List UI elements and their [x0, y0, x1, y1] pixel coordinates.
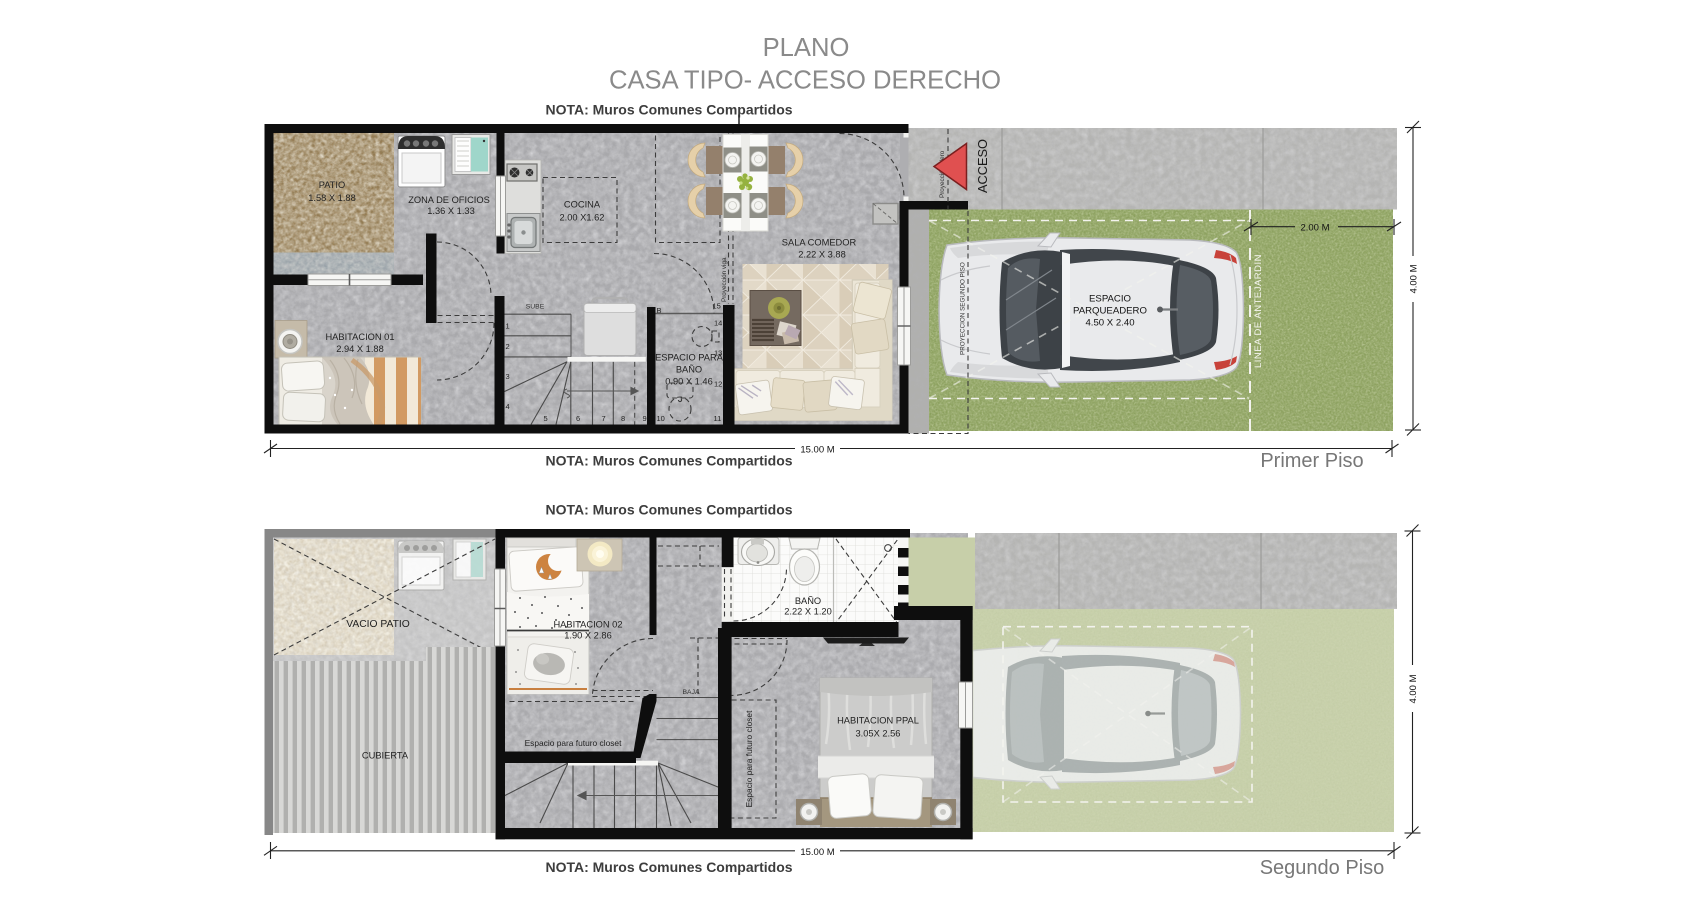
svg-text:CUBIERTA: CUBIERTA	[362, 751, 409, 761]
svg-text:0.90 X 1.46: 0.90 X 1.46	[665, 377, 713, 387]
svg-text:8: 8	[621, 414, 625, 423]
svg-text:4: 4	[506, 402, 510, 411]
svg-text:BAÑO: BAÑO	[795, 596, 821, 606]
svg-text:BAJA: BAJA	[683, 689, 700, 696]
svg-text:LINEA DE ANTEJARDIN: LINEA DE ANTEJARDIN	[1253, 254, 1264, 368]
svg-text:3: 3	[506, 372, 510, 381]
svg-text:HABITACION 01: HABITACION 01	[325, 332, 394, 342]
svg-text:2.22 X 1.20: 2.22 X 1.20	[784, 607, 832, 617]
svg-text:2: 2	[506, 342, 510, 351]
svg-text:COCINA: COCINA	[564, 200, 601, 210]
svg-text:PROYECCION SEGUNDO PISO: PROYECCION SEGUNDO PISO	[960, 262, 967, 355]
svg-text:Segundo Piso: Segundo Piso	[1260, 857, 1385, 879]
svg-text:HABITACION PPAL: HABITACION PPAL	[837, 716, 919, 726]
svg-text:SUBE: SUBE	[526, 304, 545, 311]
svg-text:10: 10	[657, 414, 665, 423]
svg-text:11: 11	[714, 414, 722, 423]
svg-text:2.00 M: 2.00 M	[1300, 223, 1329, 234]
svg-text:BAÑO: BAÑO	[676, 365, 702, 375]
svg-text:1.90 X 2.86: 1.90 X 2.86	[564, 631, 612, 641]
svg-text:Espacio para futuro closet: Espacio para futuro closet	[525, 738, 623, 748]
svg-text:Primer Piso: Primer Piso	[1260, 450, 1363, 472]
svg-text:2.22 X 3.88: 2.22 X 3.88	[798, 250, 846, 260]
svg-text:3.05X 2.56: 3.05X 2.56	[856, 729, 901, 739]
svg-text:2.00 X1.62: 2.00 X1.62	[560, 213, 605, 223]
svg-text:HABITACION 02: HABITACION 02	[553, 620, 622, 630]
svg-text:7: 7	[602, 414, 606, 423]
svg-text:PARQUEADERO: PARQUEADERO	[1073, 306, 1147, 317]
svg-text:NOTA: Muros Comunes Compartido: NOTA: Muros Comunes Compartidos	[545, 453, 792, 469]
svg-text:5: 5	[544, 414, 548, 423]
svg-text:NOTA: Muros Comunes Compartido: NOTA: Muros Comunes Compartidos	[545, 102, 792, 118]
svg-text:14: 14	[714, 319, 722, 328]
svg-text:1.36 X 1.33: 1.36 X 1.33	[427, 206, 475, 216]
svg-text:PLANO: PLANO	[763, 34, 850, 62]
svg-text:Espacio para futuro closet: Espacio para futuro closet	[744, 710, 754, 808]
svg-text:15.00 M: 15.00 M	[800, 847, 834, 858]
svg-text:ESPACIO: ESPACIO	[1089, 294, 1131, 305]
svg-text:VACIO PATIO: VACIO PATIO	[346, 619, 410, 630]
svg-text:NOTA: Muros Comunes Compartido: NOTA: Muros Comunes Compartidos	[545, 502, 792, 518]
svg-text:9: 9	[643, 414, 647, 423]
svg-text:1.58 X 1.88: 1.58 X 1.88	[308, 193, 356, 203]
svg-text:NOTA: Muros Comunes Compartido: NOTA: Muros Comunes Compartidos	[545, 859, 792, 875]
svg-text:2.94 X 1.88: 2.94 X 1.88	[336, 344, 384, 354]
svg-text:12: 12	[714, 380, 722, 389]
svg-text:ESPACIO PARA: ESPACIO PARA	[655, 353, 724, 363]
svg-text:6: 6	[576, 414, 580, 423]
svg-text:CASA TIPO- ACCESO DERECHO: CASA TIPO- ACCESO DERECHO	[609, 67, 1001, 95]
svg-text:Proyección viga: Proyección viga	[721, 257, 728, 302]
svg-text:ZONA DE OFICIOS: ZONA DE OFICIOS	[408, 195, 490, 205]
svg-text:4.00 M: 4.00 M	[1408, 674, 1419, 703]
svg-text:PATIO: PATIO	[319, 180, 346, 190]
svg-text:SALA COMEDOR: SALA COMEDOR	[782, 238, 857, 248]
svg-text:ACCESO: ACCESO	[975, 139, 990, 193]
svg-text:4.00 M: 4.00 M	[1409, 264, 1420, 293]
svg-text:15.00 M: 15.00 M	[800, 445, 834, 456]
svg-text:4.50 X 2.40: 4.50 X 2.40	[1085, 318, 1134, 329]
svg-text:1: 1	[506, 322, 510, 331]
